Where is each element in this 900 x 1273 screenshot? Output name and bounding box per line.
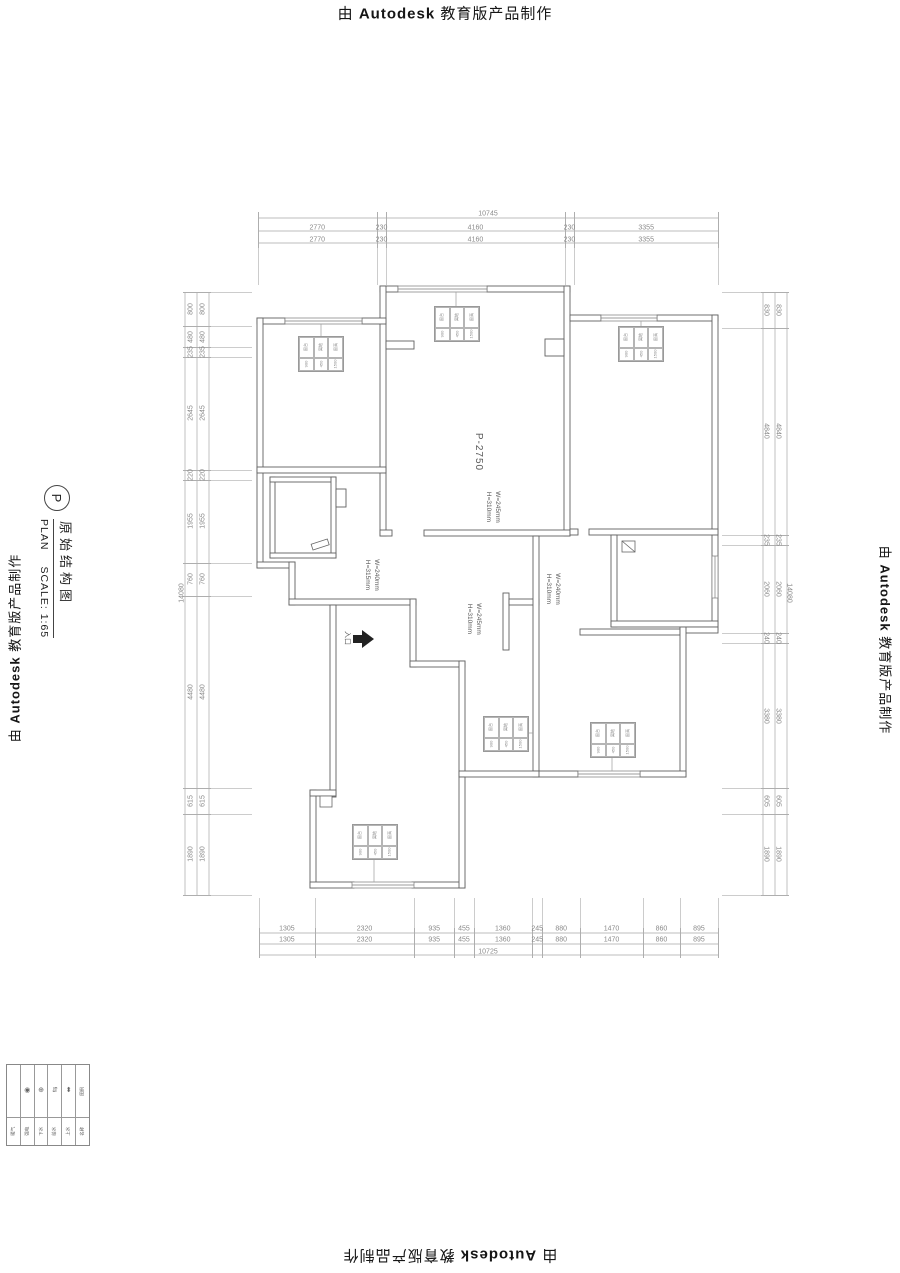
dim-extension-line — [580, 898, 581, 928]
legend-column: ⇵给水 — [48, 1065, 62, 1145]
dim-label: 860 — [656, 926, 668, 933]
dim-label: 220 — [200, 469, 207, 481]
dim-tick — [315, 928, 316, 958]
dim-label: 2645 — [188, 406, 195, 422]
dim-label: 220 — [188, 469, 195, 481]
dim-extension-line — [722, 788, 761, 789]
window-tag-table: 窗台离地窗高9004501500 — [483, 716, 529, 752]
dim-tick — [761, 788, 789, 789]
window-tag-cell: 窗高 — [513, 717, 528, 738]
window-tag-cell: 离地 — [368, 825, 383, 846]
dim-label: 4160 — [468, 224, 484, 231]
dim-label: 2770 — [309, 236, 325, 243]
dim-extension-line — [722, 643, 761, 644]
window-tag-table: 窗台离地窗高9004501500 — [434, 306, 480, 342]
dim-extension-line — [211, 326, 252, 327]
dim-extension-line — [211, 470, 252, 471]
dim-label: 615 — [200, 795, 207, 807]
dim-label: 245 — [531, 937, 543, 944]
dim-label: 2320 — [357, 926, 373, 933]
dim-extension-line — [722, 328, 761, 329]
legend-label: 强电 — [25, 1127, 30, 1136]
dim-extension-line — [722, 545, 761, 546]
dim-label: 605 — [763, 795, 770, 807]
dim-extension-line — [542, 898, 543, 928]
legend-column: ⬍上水 — [62, 1065, 76, 1145]
dim-tick — [258, 212, 259, 248]
dim-label: 880 — [555, 926, 567, 933]
dim-extension-line — [643, 898, 644, 928]
dim-label: 760 — [200, 574, 207, 586]
window-tag-cell: 900 — [353, 846, 368, 859]
dim-label: 1305 — [279, 926, 295, 933]
window-tag-cell: 1500 — [620, 744, 635, 757]
dim-label: 235 — [775, 534, 782, 546]
dim-label: 4840 — [763, 423, 770, 439]
dim-tick — [680, 928, 681, 958]
dim-extension-line — [565, 248, 566, 285]
dim-extension-line — [211, 596, 252, 597]
dim-extension-line — [315, 898, 316, 928]
legend-column: 暖气 — [7, 1065, 21, 1145]
dim-extension-line — [722, 292, 761, 293]
legend-label: 名称 — [80, 1127, 85, 1136]
legend-symbol: ⬍ — [66, 1087, 72, 1094]
dim-label: 2770 — [309, 224, 325, 231]
dim-tick — [474, 928, 475, 958]
dimension-lines — [185, 218, 787, 955]
wall-size-label-hall-left: W=240mm H=315mm — [362, 559, 380, 591]
dim-label: 230 — [564, 236, 576, 243]
legend-label: 给水 — [53, 1127, 58, 1136]
window-tag-cell: 1500 — [328, 358, 343, 371]
fixture-symbols — [311, 539, 635, 807]
window-tag-cell: 窗高 — [464, 307, 479, 328]
dim-extension-line — [211, 788, 252, 789]
legend-column: ◉强电 — [21, 1065, 35, 1145]
dim-extension-line — [258, 248, 259, 285]
dim-label: 605 — [775, 795, 782, 807]
dim-label: 1890 — [775, 847, 782, 863]
legend-symbol: 图例 — [80, 1086, 85, 1095]
dim-tick — [718, 212, 719, 248]
window-tag-cell: 450 — [368, 846, 383, 859]
dim-total-label: 14080 — [179, 583, 186, 602]
window-tag-cell: 900 — [299, 358, 314, 371]
dim-label: 2060 — [763, 581, 770, 597]
dim-extension-line — [414, 898, 415, 928]
dim-tick — [580, 928, 581, 958]
dim-label: 245 — [531, 926, 543, 933]
window-tag-cell: 1500 — [648, 348, 663, 361]
window-tag-cell: 450 — [606, 744, 621, 757]
window-tag-cell: 窗台 — [435, 307, 450, 328]
dim-label: 235 — [200, 346, 207, 358]
wall-size-label-hall-mid: W=245mm H=310mm — [464, 603, 482, 635]
window-tag-table: 窗台离地窗高9004501500 — [618, 326, 664, 362]
door-box-icon — [320, 796, 332, 807]
dim-label: 3380 — [763, 708, 770, 724]
dim-extension-line — [259, 898, 260, 928]
window-tag-cell: 450 — [314, 358, 329, 371]
window-tag-cell: 离地 — [314, 337, 329, 358]
dim-label: 240 — [775, 632, 782, 644]
dim-label: 4480 — [200, 684, 207, 700]
dim-tick — [183, 563, 211, 564]
dim-total-label: 14080 — [786, 583, 793, 602]
dim-tick — [414, 928, 415, 958]
dim-label: 1360 — [495, 926, 511, 933]
beam-label: P-2750 — [471, 433, 485, 471]
dim-tick — [761, 328, 789, 329]
window-tag-cell: 离地 — [634, 327, 649, 348]
dim-extension-line — [211, 480, 252, 481]
dim-label: 240 — [763, 632, 770, 644]
dim-label: 800 — [200, 303, 207, 315]
window-tag-cell: 窗台 — [353, 825, 368, 846]
dim-label: 3380 — [775, 708, 782, 724]
window-tag-cell: 离地 — [450, 307, 465, 328]
window-tag-cell: 900 — [591, 744, 606, 757]
dim-tick — [259, 928, 260, 958]
dim-label: 830 — [775, 304, 782, 316]
dim-extension-line — [211, 347, 252, 348]
legend-table: 暖气 ◉强电 ⊕下水 ⇵给水 ⬍上水 图例名称 — [6, 1064, 90, 1146]
dim-label: 935 — [428, 937, 440, 944]
dim-label: 230 — [564, 224, 576, 231]
dim-extension-line — [722, 814, 761, 815]
dim-extension-line — [454, 898, 455, 928]
entrance-label: 入口 — [342, 631, 351, 645]
dim-label: 1305 — [279, 937, 295, 944]
dim-extension-line — [386, 248, 387, 285]
window-tag-cell: 900 — [435, 328, 450, 341]
legend-column: ⊕下水 — [35, 1065, 49, 1145]
dim-extension-line — [211, 357, 252, 358]
dim-extension-line — [722, 895, 761, 896]
dim-label: 230 — [376, 224, 388, 231]
dim-label: 1890 — [200, 847, 207, 863]
dim-label: 860 — [656, 937, 668, 944]
window-tag-cell: 450 — [450, 328, 465, 341]
window-tag-cell: 450 — [634, 348, 649, 361]
dim-label: 2060 — [775, 581, 782, 597]
dim-label: 895 — [693, 926, 705, 933]
dim-label: 800 — [188, 303, 195, 315]
dim-tick — [183, 596, 211, 597]
window-tag-cell: 450 — [499, 738, 514, 751]
dim-label: 935 — [428, 926, 440, 933]
dim-tick — [183, 326, 211, 327]
door-leaf-icon — [311, 539, 329, 550]
dim-label: 4160 — [468, 236, 484, 243]
dim-extension-line — [680, 898, 681, 928]
dim-total-label: 10725 — [478, 948, 497, 955]
dim-label: 455 — [458, 926, 470, 933]
dim-tick — [761, 895, 789, 896]
dim-extension-line — [377, 248, 378, 285]
window-tag-cell: 窗高 — [648, 327, 663, 348]
dim-label: 1360 — [495, 937, 511, 944]
window-tag-cell: 窗台 — [484, 717, 499, 738]
dim-label: 3355 — [638, 224, 654, 231]
dim-extension-line — [211, 895, 252, 896]
dim-label: 1470 — [604, 926, 620, 933]
dim-label: 1470 — [604, 937, 620, 944]
window-tag-table: 窗台离地窗高9004501500 — [298, 336, 344, 372]
dim-extension-line — [211, 563, 252, 564]
legend-symbol: ⊕ — [38, 1087, 44, 1094]
window-tag-cell: 900 — [484, 738, 499, 751]
window-tag-cell: 1500 — [382, 846, 397, 859]
legend-symbol: ◉ — [24, 1087, 30, 1094]
window-symbols — [285, 286, 718, 888]
dim-extension-line — [474, 898, 475, 928]
window-tag-cell: 离地 — [606, 723, 621, 744]
legend-column: 图例名称 — [76, 1065, 89, 1145]
dim-label: 480 — [188, 331, 195, 343]
dim-label: 4840 — [775, 423, 782, 439]
dim-label: 760 — [188, 574, 195, 586]
dim-extension-line — [718, 898, 719, 928]
legend-symbol: ⇵ — [52, 1087, 58, 1094]
window-tag-table: 窗台离地窗高9004501500 — [590, 722, 636, 758]
dim-label: 1955 — [188, 514, 195, 530]
window-tag-cell: 窗高 — [620, 723, 635, 744]
window-tag-cell: 900 — [619, 348, 634, 361]
dim-label: 3355 — [638, 236, 654, 243]
window-tag-table: 窗台离地窗高9004501500 — [352, 824, 398, 860]
dim-tick — [183, 895, 211, 896]
dim-tick — [454, 928, 455, 958]
dim-extension-line — [722, 633, 761, 634]
dim-label: 615 — [188, 795, 195, 807]
dim-tick — [183, 788, 211, 789]
window-tag-cell: 离地 — [499, 717, 514, 738]
drawing-sheet: 由 Autodesk 教育版产品制作 由 Autodesk 教育版产品制作 由 … — [0, 0, 900, 1273]
dim-tick — [643, 928, 644, 958]
dim-tick — [183, 292, 211, 293]
dim-label: 2320 — [357, 937, 373, 944]
window-tag-cell: 窗高 — [328, 337, 343, 358]
dim-total-label: 10745 — [478, 211, 497, 218]
dim-label: 235 — [763, 534, 770, 546]
dim-label: 2645 — [200, 406, 207, 422]
window-tag-cell: 窗台 — [591, 723, 606, 744]
window-tag-cell: 窗台 — [619, 327, 634, 348]
dim-extension-line — [722, 535, 761, 536]
dim-label: 830 — [763, 304, 770, 316]
dim-tick — [761, 292, 789, 293]
wall-size-label-hall-right: W=240mm H=310mm — [543, 573, 561, 605]
dim-tick — [718, 928, 719, 958]
dim-extension-line — [718, 248, 719, 285]
dim-tick — [183, 814, 211, 815]
window-tag-cell: 窗台 — [299, 337, 314, 358]
window-tag-cell: 1500 — [464, 328, 479, 341]
dim-extension-line — [532, 898, 533, 928]
dim-label: 235 — [188, 346, 195, 358]
dim-label: 1890 — [188, 847, 195, 863]
dim-label: 895 — [693, 937, 705, 944]
legend-label: 下水 — [39, 1127, 44, 1136]
dim-extension-line — [211, 814, 252, 815]
dim-tick — [761, 814, 789, 815]
legend-label: 暖气 — [11, 1127, 16, 1136]
dim-extension-line — [574, 248, 575, 285]
dim-label: 1955 — [200, 514, 207, 530]
dim-label: 480 — [200, 331, 207, 343]
window-tag-cell: 1500 — [513, 738, 528, 751]
dim-extension-line — [211, 292, 252, 293]
dim-label: 230 — [376, 236, 388, 243]
wall-size-label-center: W=245mm H=310mm — [483, 491, 501, 523]
dim-label: 880 — [555, 937, 567, 944]
entrance-arrow-icon — [353, 630, 374, 648]
window-tag-cell: 窗高 — [382, 825, 397, 846]
dim-label: 4480 — [188, 684, 195, 700]
dim-label: 455 — [458, 937, 470, 944]
legend-label: 上水 — [66, 1127, 71, 1136]
dim-label: 1890 — [763, 847, 770, 863]
